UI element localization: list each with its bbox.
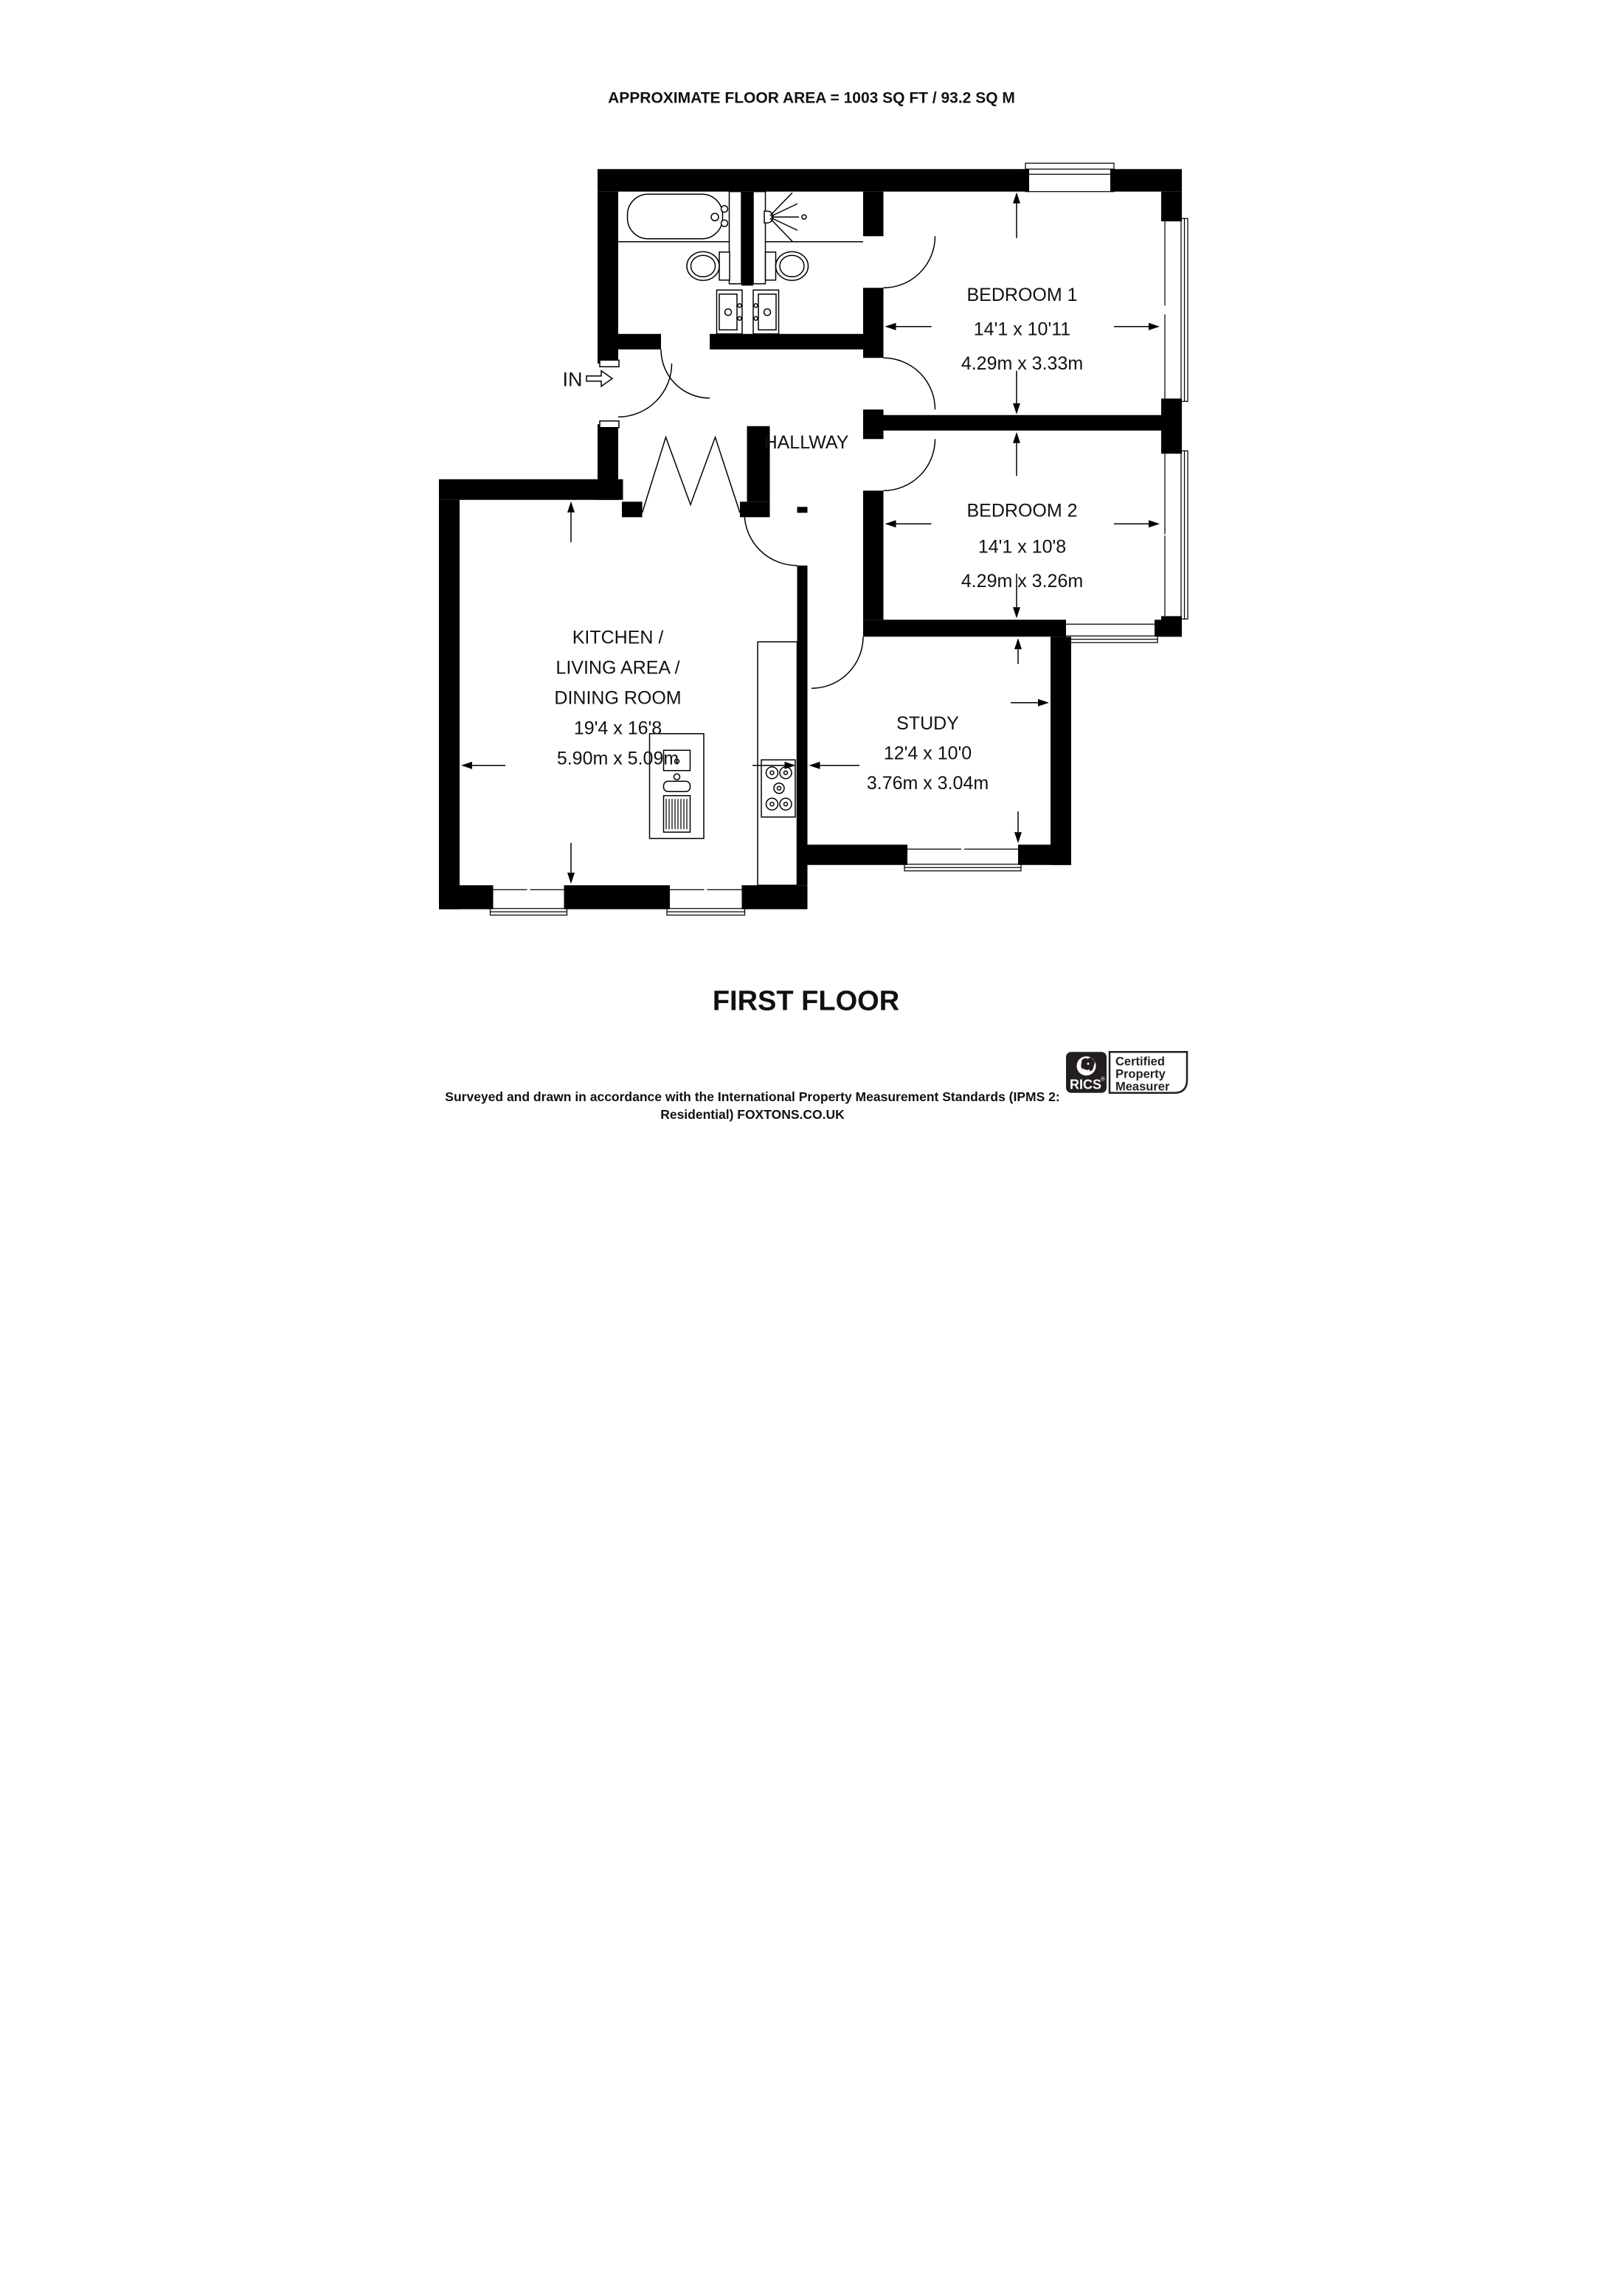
window-study	[904, 844, 1021, 871]
sink-icon	[717, 290, 743, 334]
window-kitchen-left	[491, 885, 567, 915]
cert-line1: Certified	[1115, 1055, 1165, 1068]
window-bedroom2-south	[1063, 620, 1157, 642]
bedroom2-dims-metric: 4.29m x 3.26m	[961, 571, 1083, 592]
door-frame	[600, 360, 619, 367]
cert-line2: Property	[1115, 1067, 1166, 1081]
footer-line1: Surveyed and drawn in accordance with th…	[445, 1089, 1059, 1104]
rics-logo: RICS ® Certified Property Measurer	[1066, 1052, 1187, 1093]
window-bedroom1-right	[1161, 218, 1188, 401]
walls	[439, 169, 1182, 909]
hallway-label: HALLWAY	[764, 432, 849, 453]
window-bedroom1-top	[1025, 163, 1114, 192]
entry-door-arc	[618, 364, 672, 417]
kitchen-door-arc	[744, 513, 797, 566]
room-labels: HALLWAY BEDROOM 1 14'1 x 10'11 4.29m x 3…	[554, 285, 1083, 794]
rics-brand: RICS	[1070, 1077, 1101, 1092]
floor-plan: APPROXIMATE FLOOR AREA = 1003 SQ FT / 93…	[406, 0, 1217, 1148]
study-door-arc	[811, 637, 863, 688]
kitchen-label-3: DINING ROOM	[554, 687, 681, 708]
page-title: APPROXIMATE FLOOR AREA = 1003 SQ FT / 93…	[608, 89, 1015, 106]
kitchen-dims-metric: 5.90m x 5.09m	[557, 748, 679, 769]
entrance-label: IN	[563, 368, 583, 390]
closet-doors-icon	[643, 437, 741, 513]
toilet-icon	[687, 252, 730, 280]
cert-line3: Measurer	[1115, 1080, 1170, 1093]
bedroom2-dims-imperial: 14'1 x 10'8	[978, 536, 1066, 557]
kitchen-label-2: LIVING AREA /	[556, 657, 679, 678]
shower-icon	[764, 193, 806, 241]
kitchen-dims-imperial: 19'4 x 16'8	[574, 718, 662, 738]
study-label: STUDY	[896, 713, 959, 734]
door-frame	[600, 421, 619, 428]
toilet-icon	[766, 252, 809, 280]
bedroom2-label: BEDROOM 2	[966, 500, 1077, 521]
rics-registered-mark: ®	[1101, 1075, 1105, 1082]
study-dims-imperial: 12'4 x 10'0	[884, 743, 972, 763]
hob-icon	[761, 760, 795, 817]
window-kitchen-right	[667, 885, 745, 915]
kitchen-label-1: KITCHEN /	[572, 627, 664, 648]
bedroom1-dims-imperial: 14'1 x 10'11	[974, 319, 1070, 339]
bedroom2-door-arc	[884, 439, 935, 490]
bedroom1-dims-metric: 4.29m x 3.33m	[961, 353, 1083, 374]
window-bedroom2-right	[1161, 451, 1188, 619]
lion-icon	[1077, 1056, 1096, 1075]
footer: Surveyed and drawn in accordance with th…	[445, 1089, 1059, 1122]
ensuite-door-arc	[884, 236, 935, 288]
sink-icon	[753, 290, 779, 334]
bathroom-door-arc	[661, 350, 710, 398]
floor-label: FIRST FLOOR	[713, 985, 899, 1016]
windows	[491, 163, 1188, 915]
floorplan-page: APPROXIMATE FLOOR AREA = 1003 SQ FT / 93…	[406, 0, 1217, 1148]
study-dims-metric: 3.76m x 3.04m	[867, 773, 989, 794]
entry-arrow-icon	[586, 371, 612, 386]
certified-badge: Certified Property Measurer	[1110, 1052, 1187, 1093]
bedroom1-label: BEDROOM 1	[966, 285, 1077, 305]
footer-line2: Residential) FOXTONS.CO.UK	[660, 1107, 845, 1122]
bedroom1-door-arc	[884, 358, 935, 409]
bathtub-icon	[628, 194, 728, 239]
bathroom-fixtures	[618, 192, 863, 334]
